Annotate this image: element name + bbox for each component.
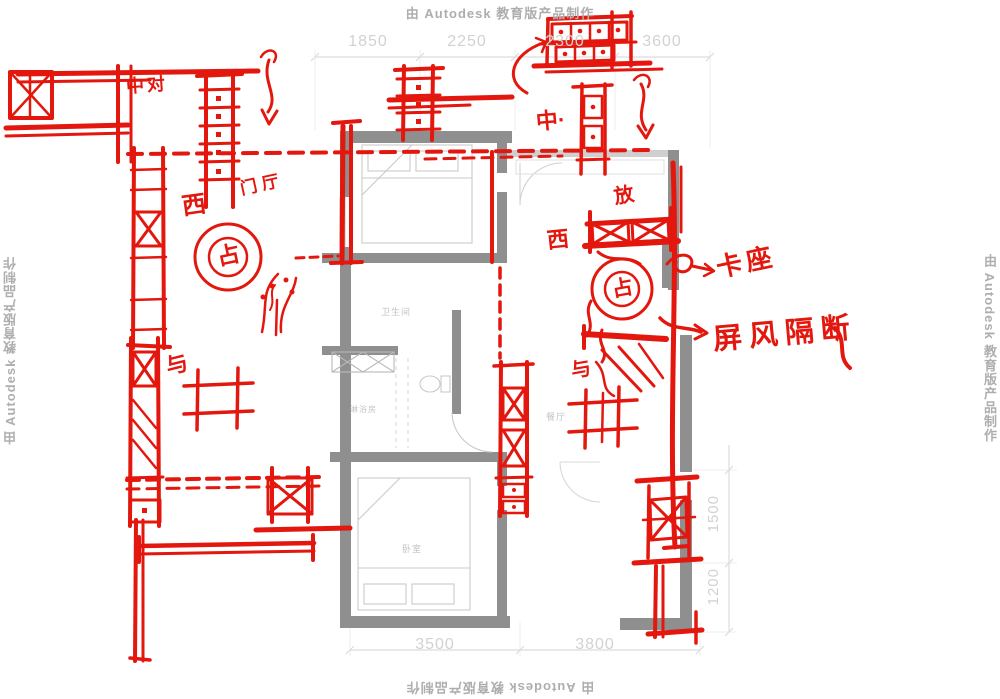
sketch-table-hash-right <box>569 387 637 448</box>
sketch-label-scribble-right: 与 <box>569 358 592 381</box>
sketch-bench-leaves <box>584 326 666 396</box>
sketch-label-west-left: 西 <box>180 192 207 219</box>
sketch-dining-cabinet <box>585 208 678 264</box>
sketch-vertical-bottom-right <box>648 566 702 643</box>
dim-top-2: 2250 <box>432 33 502 51</box>
sketch-cabinet-top-center <box>389 66 512 140</box>
sketch-dashed-vertical <box>492 152 500 358</box>
sketch-dashes-mid <box>296 256 338 258</box>
sketch-label-flue-right: 占 <box>610 276 634 300</box>
dim-right-2: 1200 <box>705 568 722 605</box>
sketch-drawer-column <box>197 73 242 207</box>
watermark-top: 由 Autodesk 教育版产品制作 <box>0 3 1000 22</box>
sketch-tall-unit-right <box>494 362 533 516</box>
arrow-icon-top-left <box>261 51 277 124</box>
sketch-label-center-top: 中· <box>535 109 566 133</box>
dim-bottom-2: 3800 <box>560 636 630 654</box>
sketch-label-flue-left: 占 <box>215 242 242 269</box>
watermark-left: 由 Autodesk 教育版产品制作 <box>1 256 20 444</box>
room-label-dining: 餐厅 <box>546 410 566 423</box>
room-label-shower: 淋浴房 <box>350 404 377 415</box>
dim-bottom-1: 3500 <box>400 636 470 654</box>
sketch-label-west-right: 西 <box>546 228 570 252</box>
watermark-right: 由 Autodesk 教育版产品制作 <box>980 254 999 442</box>
sketch-cabinet-entry <box>573 84 612 174</box>
dim-right-1: 1500 <box>705 495 722 532</box>
room-label-bathroom: 卫生间 <box>381 305 411 318</box>
sketch-unit-bottom-right <box>634 477 701 563</box>
sketch-label-fang: 放 <box>612 184 635 207</box>
red-marker-sketch <box>0 0 1000 699</box>
sketch-xbox-bottom-center <box>256 468 350 530</box>
sketch-table-hash-left <box>184 368 253 430</box>
sketch-label-top-left: 中对 <box>125 75 168 96</box>
sketch-plant <box>261 274 297 335</box>
dim-top-4: 3600 <box>627 33 697 51</box>
watermark-bottom: 由 Autodesk 教育版产品制作 <box>0 679 1000 698</box>
sketch-cabinet-left-mid <box>127 338 163 526</box>
dim-top-3: 2300 <box>530 33 600 51</box>
sketch-wardrobe-left <box>128 148 170 348</box>
sketch-rail-bottom-left <box>139 535 314 562</box>
room-label-bedroom: 卧室 <box>402 542 422 555</box>
arrow-icon-top-right <box>634 75 653 138</box>
cad-floorplan-canvas: 由 Autodesk 教育版产品制作 由 Autodesk 教育版产品制作 由 … <box>0 0 1000 699</box>
sketch-wall-highlight-left <box>331 121 362 263</box>
dim-top-1: 1850 <box>333 33 403 51</box>
